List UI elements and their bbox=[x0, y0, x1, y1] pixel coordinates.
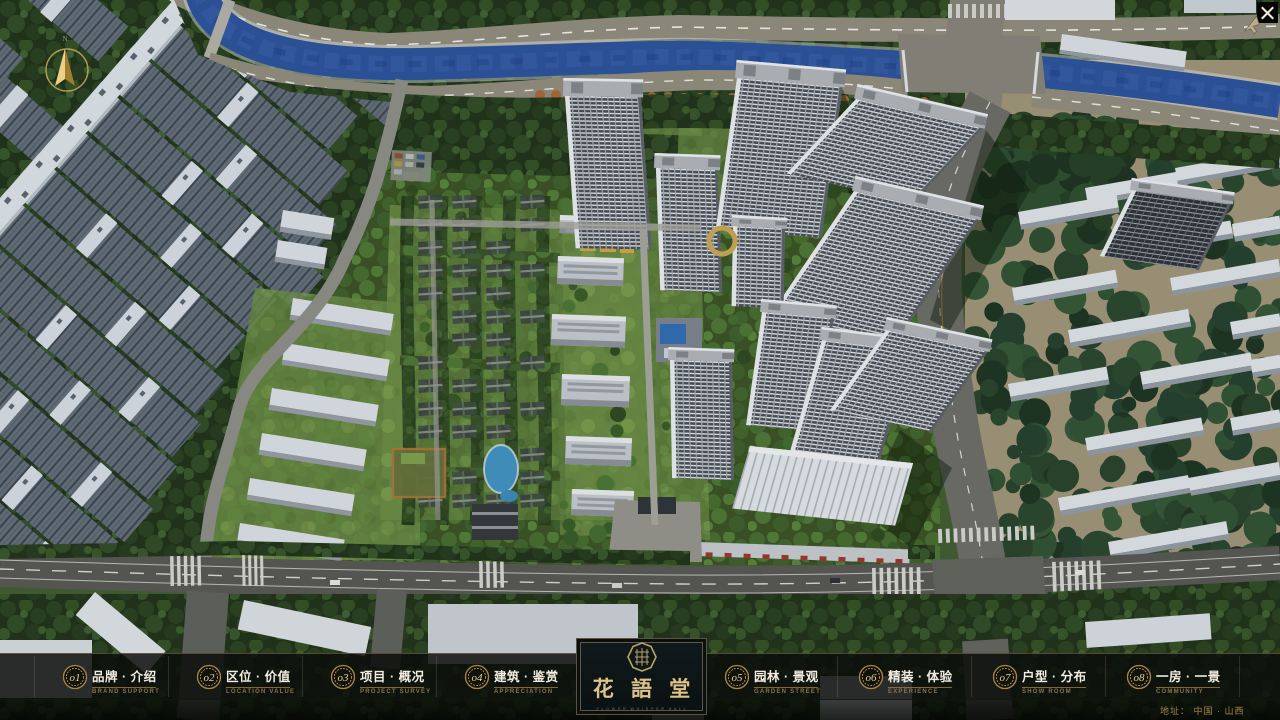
svg-text:o3: o3 bbox=[338, 672, 350, 684]
svg-text:o5: o5 bbox=[732, 672, 744, 684]
svg-text:N: N bbox=[62, 35, 67, 43]
svg-text:o1: o1 bbox=[70, 672, 81, 684]
svg-text:o2: o2 bbox=[204, 672, 216, 684]
svg-text:o4: o4 bbox=[472, 672, 484, 684]
svg-text:o7: o7 bbox=[1000, 672, 1012, 684]
svg-text:o6: o6 bbox=[866, 672, 878, 684]
svg-text:o8: o8 bbox=[1134, 672, 1146, 684]
